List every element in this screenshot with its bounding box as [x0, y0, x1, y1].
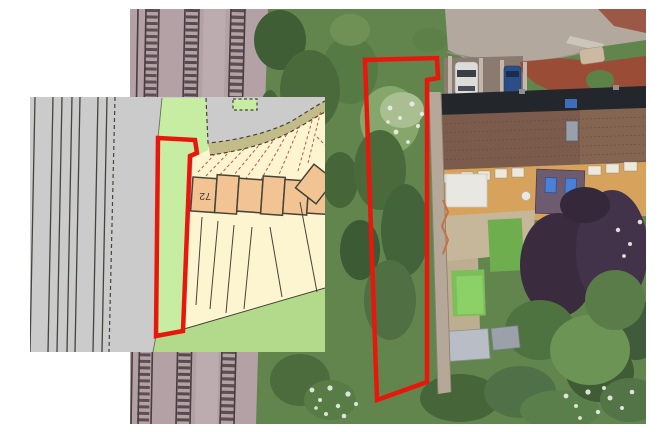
roof-window [565, 99, 577, 108]
house-number-label: 72 [199, 190, 211, 202]
composite-figure: 72 [0, 0, 670, 432]
map-green-island [233, 99, 257, 110]
shed [446, 329, 490, 362]
beige-car [579, 46, 605, 64]
skylight [566, 121, 578, 141]
blue-car [504, 66, 521, 95]
map-inset: 72 [30, 97, 334, 352]
bush [586, 70, 614, 90]
white-car [455, 62, 478, 95]
lawn [488, 218, 525, 272]
figure-canvas: 72 [0, 0, 670, 432]
shed-2 [491, 326, 520, 351]
gardens [444, 187, 648, 385]
conservatory [446, 174, 487, 207]
satellite-dish [522, 192, 531, 201]
